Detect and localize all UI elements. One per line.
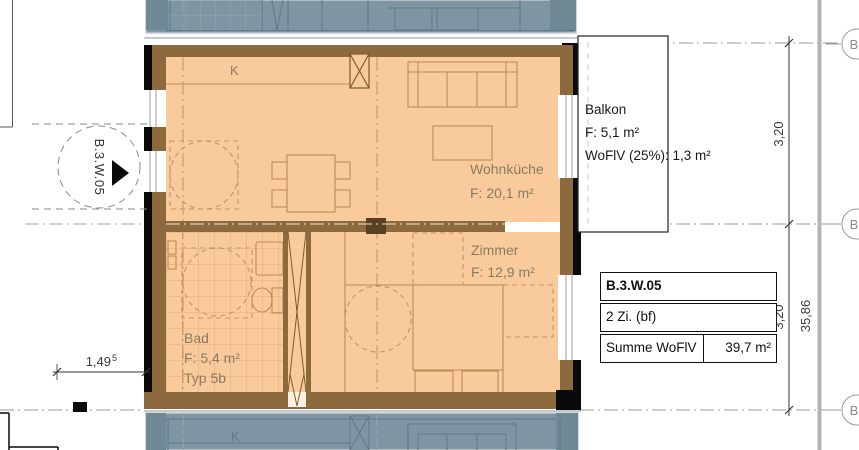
dim-entry-sup: 5	[112, 353, 117, 363]
grid-bubble-label: B	[850, 37, 859, 52]
kitchen-label-neighbor: K	[231, 429, 241, 444]
site-lines	[0, 0, 87, 450]
bad-area: F: 5,4 m²	[184, 350, 240, 366]
orientation-arrow	[112, 160, 129, 186]
kitchen-label: K	[230, 63, 240, 78]
floor-plan-drawing: K	[0, 0, 859, 450]
unit-marker: B.3.W.05	[32, 124, 148, 209]
survey-point	[73, 402, 87, 412]
window-left-2	[142, 151, 166, 192]
dimension-entry: 1,49 5	[53, 353, 150, 380]
bad-name: Bad	[184, 330, 209, 346]
zimmer-name: Zimmer	[471, 242, 519, 258]
neighbor-unit-bottom: K	[144, 411, 581, 450]
grid-bubbles: B B B	[826, 29, 859, 425]
zimmer-area: F: 12,9 m²	[471, 264, 535, 280]
shaft-box-kitchen	[350, 54, 369, 88]
balkon-area: F: 5,1 m²	[585, 125, 640, 140]
dim-entry-value: 1,49	[86, 354, 111, 369]
dim-segment-top: 3,20	[771, 121, 786, 146]
neighbor-unit-top	[144, 0, 581, 38]
grid-bubble-label: B	[850, 403, 859, 418]
balkon-woflv: WoFlV (25%): 1,3 m²	[585, 148, 711, 163]
balkon-name: Balkon	[585, 102, 626, 117]
info-table-unit-id: B.3.W.05	[600, 272, 777, 301]
dim-total: 35,86	[798, 300, 813, 333]
bad-typ: Typ 5b	[184, 370, 226, 386]
wall-bottom	[144, 392, 581, 409]
wohnkueche-name: Wohnküche	[470, 161, 544, 177]
balcony: Balkon F: 5,1 m² WoFlV (25%): 1,3 m²	[578, 36, 711, 232]
info-table-sum-label: Summe WoFlV	[601, 335, 704, 362]
wall-interior	[166, 221, 505, 232]
dimension-system: 3,20 3,20 35,86 B B B	[771, 0, 859, 450]
info-table-unit-type: 2 Zi. (bf)	[600, 303, 777, 332]
bad-tile-grid	[166, 232, 283, 392]
info-table-sum-value: 39,7 m²	[704, 335, 776, 362]
unit-marker-label: B.3.W.05	[92, 139, 107, 196]
window-left-1	[142, 90, 166, 127]
floor-plan-canvas: K	[0, 0, 859, 450]
column	[366, 218, 386, 234]
window-zimmer	[558, 275, 582, 360]
info-table-sum-row: Summe WoFlV 39,7 m²	[600, 334, 777, 363]
unit-info-table: B.3.W.05 2 Zi. (bf) Summe WoFlV 39,7 m²	[600, 272, 777, 365]
grid-bubble-label: B	[850, 217, 859, 232]
wohnkueche-area: F: 20,1 m²	[470, 185, 534, 201]
floor-zimmer	[311, 232, 560, 392]
